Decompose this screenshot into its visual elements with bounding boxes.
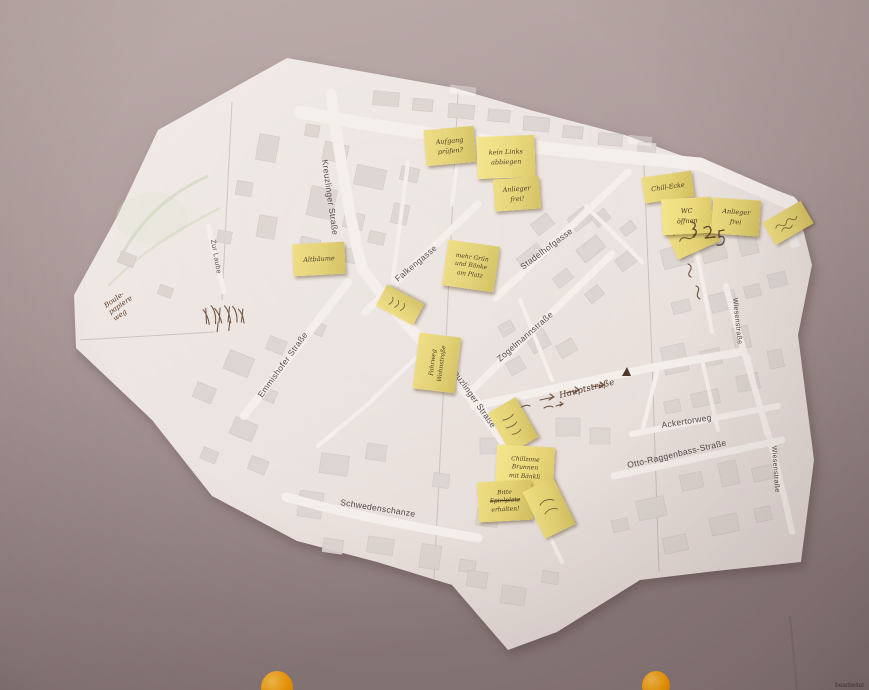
note-text-line: kein Links xyxy=(489,148,523,157)
sticky-note-spielplatz-erhalten: Bitte Spielplatz erhalten! xyxy=(477,480,533,523)
sticky-note-kein-links-abbiegen: kein Links abbiegen xyxy=(476,135,535,179)
note-text-line: Anlieger xyxy=(502,184,530,194)
note-text-line: WC xyxy=(681,207,693,216)
rotated-note-text: Fahrweg Wohnstraße xyxy=(427,344,447,382)
note-text-line: Altbäume xyxy=(303,254,335,264)
sticky-note-mehr-gruen: mehr Grün und Bänke am Platz xyxy=(442,240,500,293)
map-credit-text: bearbeitet xyxy=(835,682,864,689)
note-text-line: erhalten! xyxy=(491,505,519,514)
note-text-line: Chill-Ecke xyxy=(651,181,686,194)
pen-scribble-over-notes xyxy=(686,216,732,256)
sticky-note-fahrweg-wohnstrasse: Fahrweg Wohnstraße xyxy=(413,333,462,394)
note-text-line: frei! xyxy=(510,194,525,203)
note-text-line: Bitte xyxy=(497,488,512,496)
sticky-note-anlieger-frei-1: Anlieger frei! xyxy=(493,176,541,211)
sticky-note-aufgang: Aufgang prüfen? xyxy=(424,126,477,166)
note-text-line: Brunnen xyxy=(512,464,539,473)
note-text-line: prüfen? xyxy=(437,145,463,155)
note-text-line: Chillzone xyxy=(511,455,540,464)
note-text-line: abbiegen xyxy=(491,157,522,166)
sticky-note-altbaeume: Altbäume xyxy=(292,242,346,277)
